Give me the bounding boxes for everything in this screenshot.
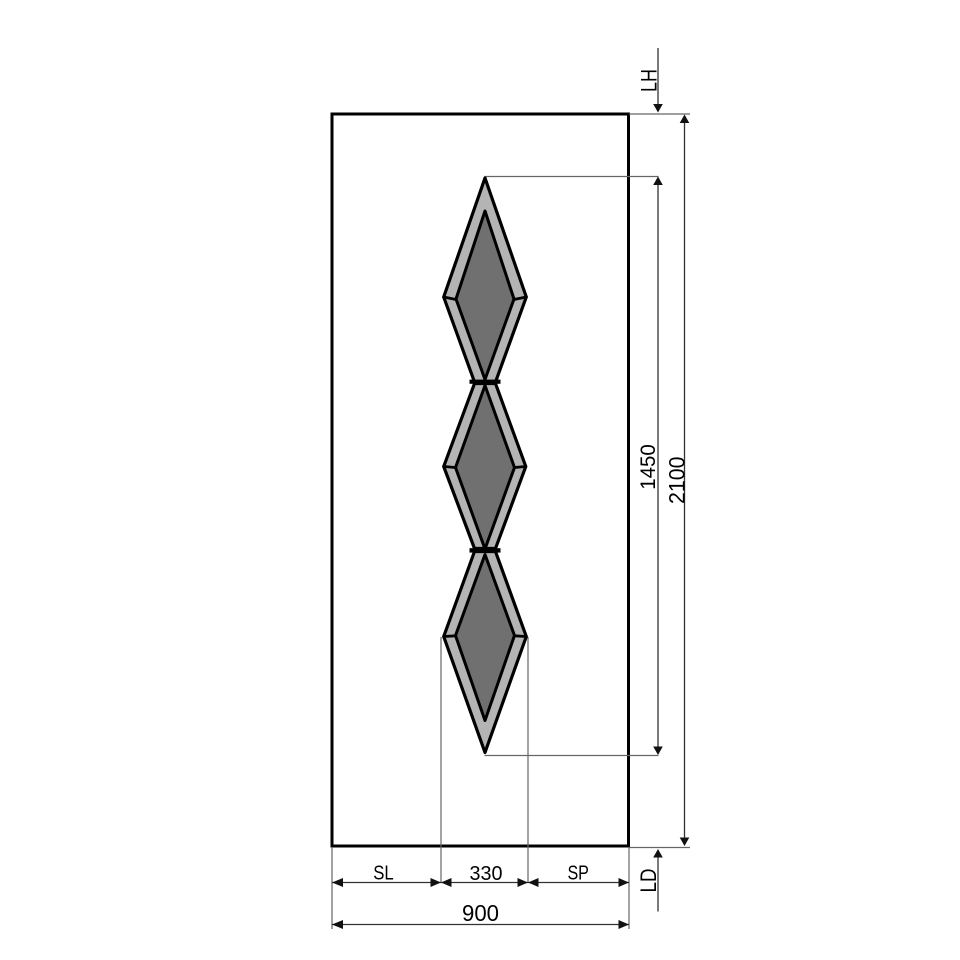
svg-text:2100: 2100 [665,457,690,505]
svg-text:330: 330 [470,862,503,885]
svg-text:LD: LD [636,869,661,893]
svg-text:SL: SL [373,862,394,885]
svg-text:LH: LH [637,69,662,92]
svg-text:SP: SP [567,862,589,885]
svg-text:1450: 1450 [636,444,660,490]
svg-text:900: 900 [462,900,499,926]
